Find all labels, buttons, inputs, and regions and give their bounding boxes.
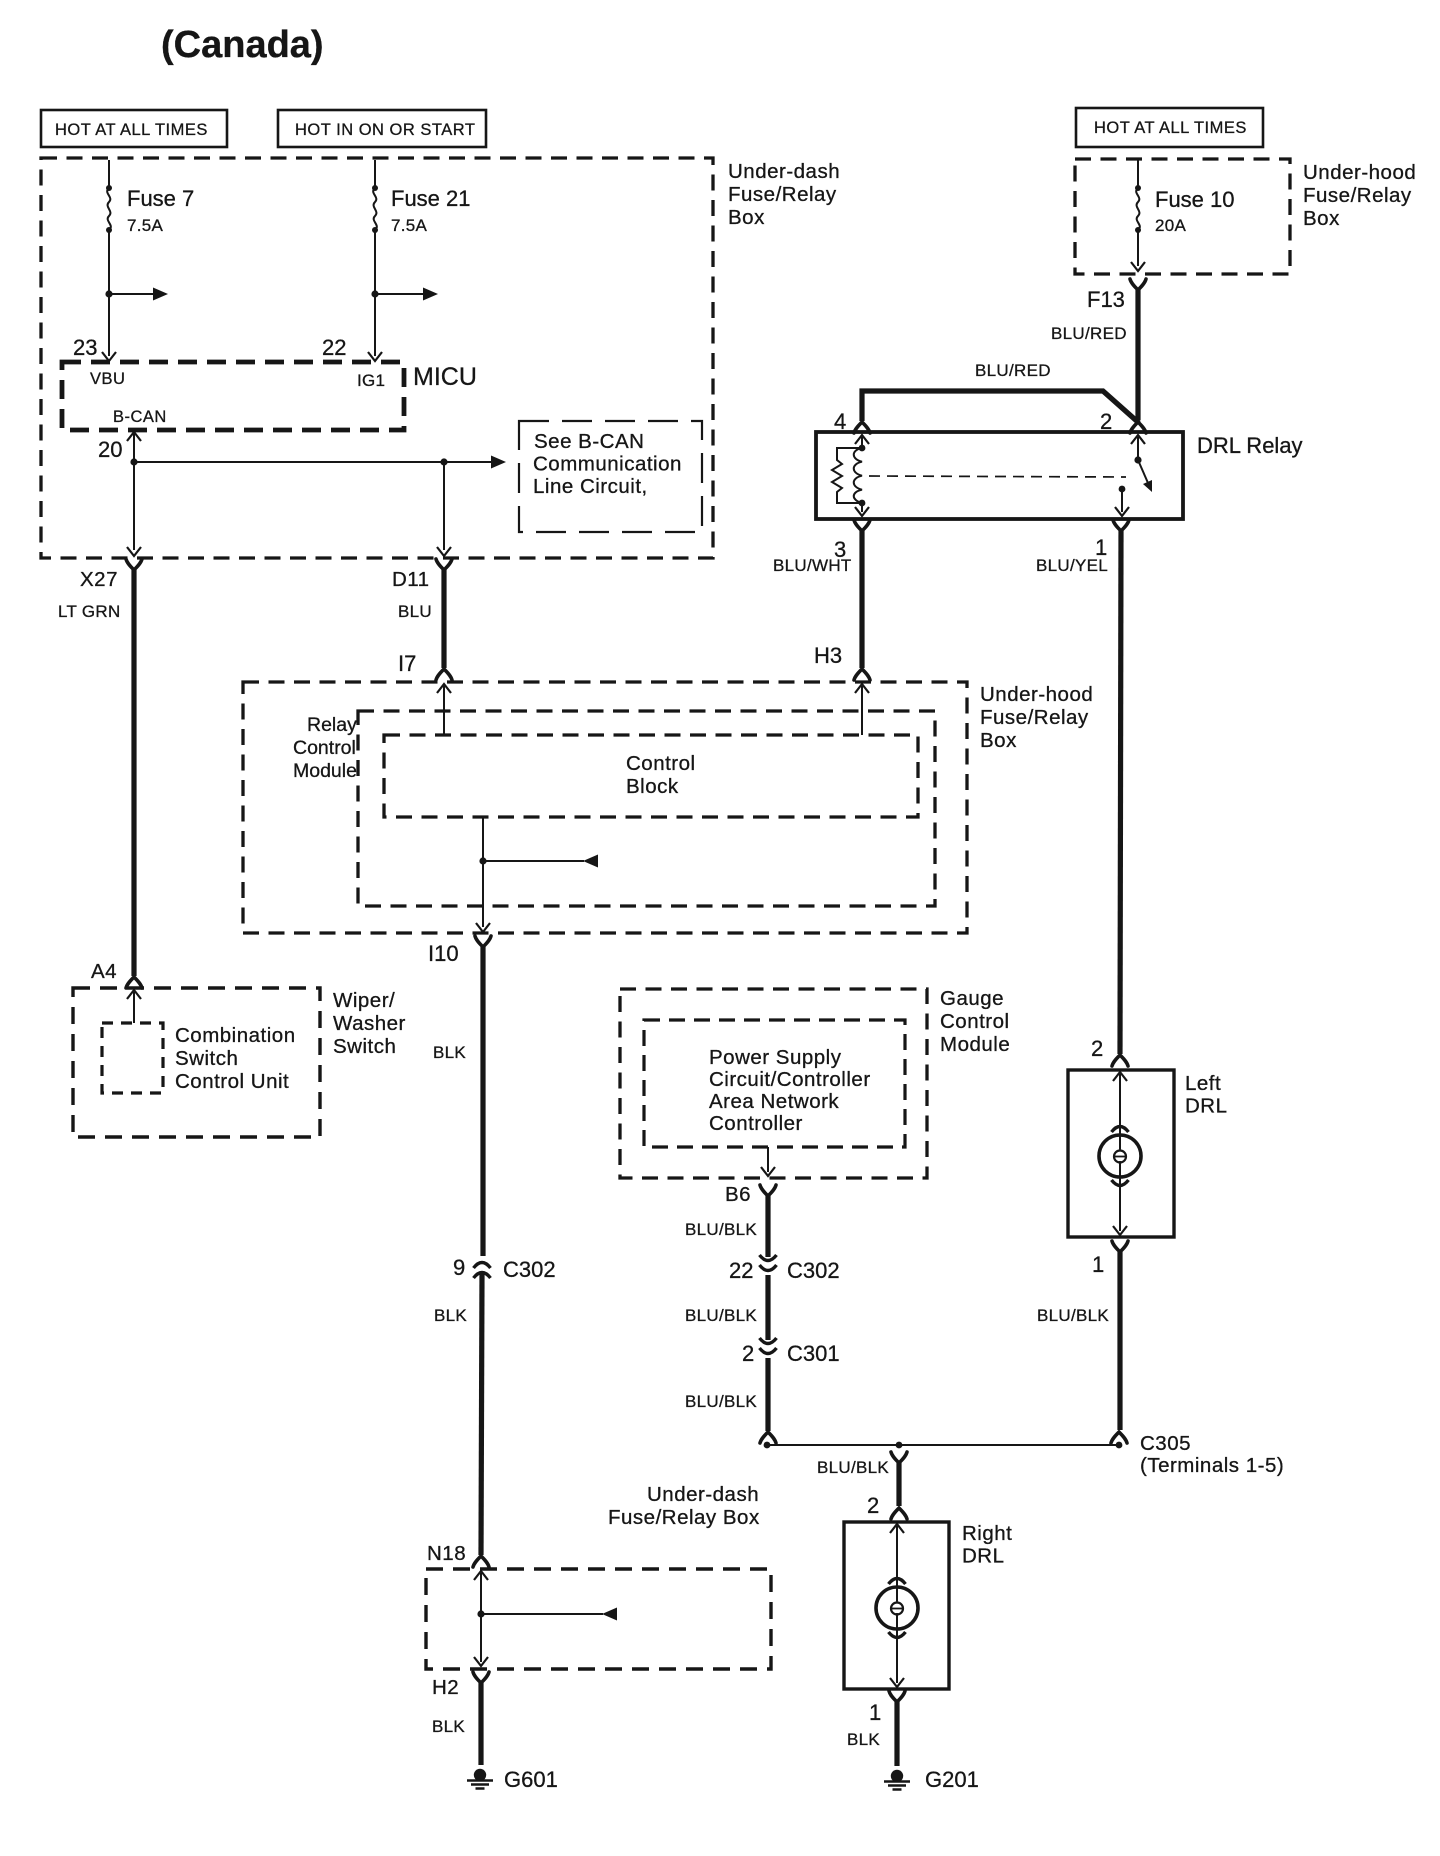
svg-text:B-CAN: B-CAN xyxy=(113,408,167,426)
svg-text:(Canada): (Canada) xyxy=(161,24,324,66)
svg-text:X27: X27 xyxy=(80,568,118,591)
svg-text:1: 1 xyxy=(869,1700,881,1725)
svg-text:BLU/BLK: BLU/BLK xyxy=(685,1306,757,1325)
svg-text:N18: N18 xyxy=(427,1542,466,1565)
svg-text:I7: I7 xyxy=(398,651,416,676)
svg-text:HOT AT ALL TIMES: HOT AT ALL TIMES xyxy=(55,121,208,139)
svg-text:BLU/BLK: BLU/BLK xyxy=(685,1220,757,1239)
svg-text:Under-dash: Under-dash xyxy=(647,1483,759,1506)
svg-text:BLU/RED: BLU/RED xyxy=(975,361,1051,380)
svg-text:HOT AT ALL TIMES: HOT AT ALL TIMES xyxy=(1094,119,1247,137)
svg-text:Fuse 7: Fuse 7 xyxy=(127,186,194,211)
svg-text:I10: I10 xyxy=(428,941,459,966)
svg-text:G601: G601 xyxy=(504,1767,558,1792)
svg-text:Fuse 10: Fuse 10 xyxy=(1155,187,1235,212)
svg-text:F13: F13 xyxy=(1087,287,1125,312)
svg-text:G201: G201 xyxy=(925,1767,979,1792)
svg-text:BLU/BLK: BLU/BLK xyxy=(817,1458,889,1477)
svg-text:7.5A: 7.5A xyxy=(127,216,164,235)
svg-text:C302: C302 xyxy=(503,1257,556,1282)
svg-text:A4: A4 xyxy=(91,960,117,983)
svg-text:C301: C301 xyxy=(787,1341,840,1366)
svg-text:BLU/BLK: BLU/BLK xyxy=(1037,1306,1109,1325)
svg-text:9: 9 xyxy=(453,1255,465,1280)
svg-text:MICU: MICU xyxy=(413,363,477,391)
svg-text:BLU/BLK: BLU/BLK xyxy=(685,1392,757,1411)
svg-text:Gauge Control Module: Gauge Control Module xyxy=(940,987,1016,1056)
svg-text:IG1: IG1 xyxy=(357,371,385,390)
svg-text:Left DRL: Left DRL xyxy=(1185,1072,1228,1118)
svg-text:2: 2 xyxy=(867,1493,879,1518)
svg-text:BLU: BLU xyxy=(398,602,432,621)
svg-text:DRL Relay: DRL Relay xyxy=(1197,433,1303,458)
svg-text:2: 2 xyxy=(742,1341,754,1366)
svg-text:BLK: BLK xyxy=(847,1730,880,1749)
svg-text:BLU/RED: BLU/RED xyxy=(1051,324,1127,343)
svg-text:BLK: BLK xyxy=(434,1306,467,1325)
svg-text:D11: D11 xyxy=(392,568,430,591)
svg-text:20: 20 xyxy=(98,437,122,462)
svg-text:VBU: VBU xyxy=(90,370,125,388)
svg-text:Fuse 21: Fuse 21 xyxy=(391,186,471,211)
svg-text:(Terminals 1-5): (Terminals 1-5) xyxy=(1140,1454,1284,1477)
svg-text:B6: B6 xyxy=(725,1183,751,1206)
svg-text:BLK: BLK xyxy=(432,1717,465,1736)
svg-text:BLK: BLK xyxy=(433,1043,466,1062)
svg-text:20A: 20A xyxy=(1155,216,1187,235)
svg-text:H2: H2 xyxy=(432,1676,459,1699)
svg-text:BLU/WHT: BLU/WHT xyxy=(773,556,852,575)
svg-text:23: 23 xyxy=(73,335,97,360)
svg-text:22: 22 xyxy=(729,1258,753,1283)
svg-text:7.5A: 7.5A xyxy=(391,216,428,235)
svg-text:C305: C305 xyxy=(1140,1432,1191,1455)
svg-text:2: 2 xyxy=(1091,1036,1103,1061)
svg-text:LT GRN: LT GRN xyxy=(58,602,121,621)
svg-text:BLU/YEL: BLU/YEL xyxy=(1036,556,1108,575)
svg-text:1: 1 xyxy=(1092,1252,1104,1277)
svg-text:HOT IN ON OR START: HOT IN ON OR START xyxy=(295,121,475,139)
svg-text:22: 22 xyxy=(322,335,346,360)
svg-text:H3: H3 xyxy=(814,643,842,668)
svg-text:C302: C302 xyxy=(787,1258,840,1283)
svg-text:Fuse/Relay Box: Fuse/Relay Box xyxy=(608,1506,760,1529)
